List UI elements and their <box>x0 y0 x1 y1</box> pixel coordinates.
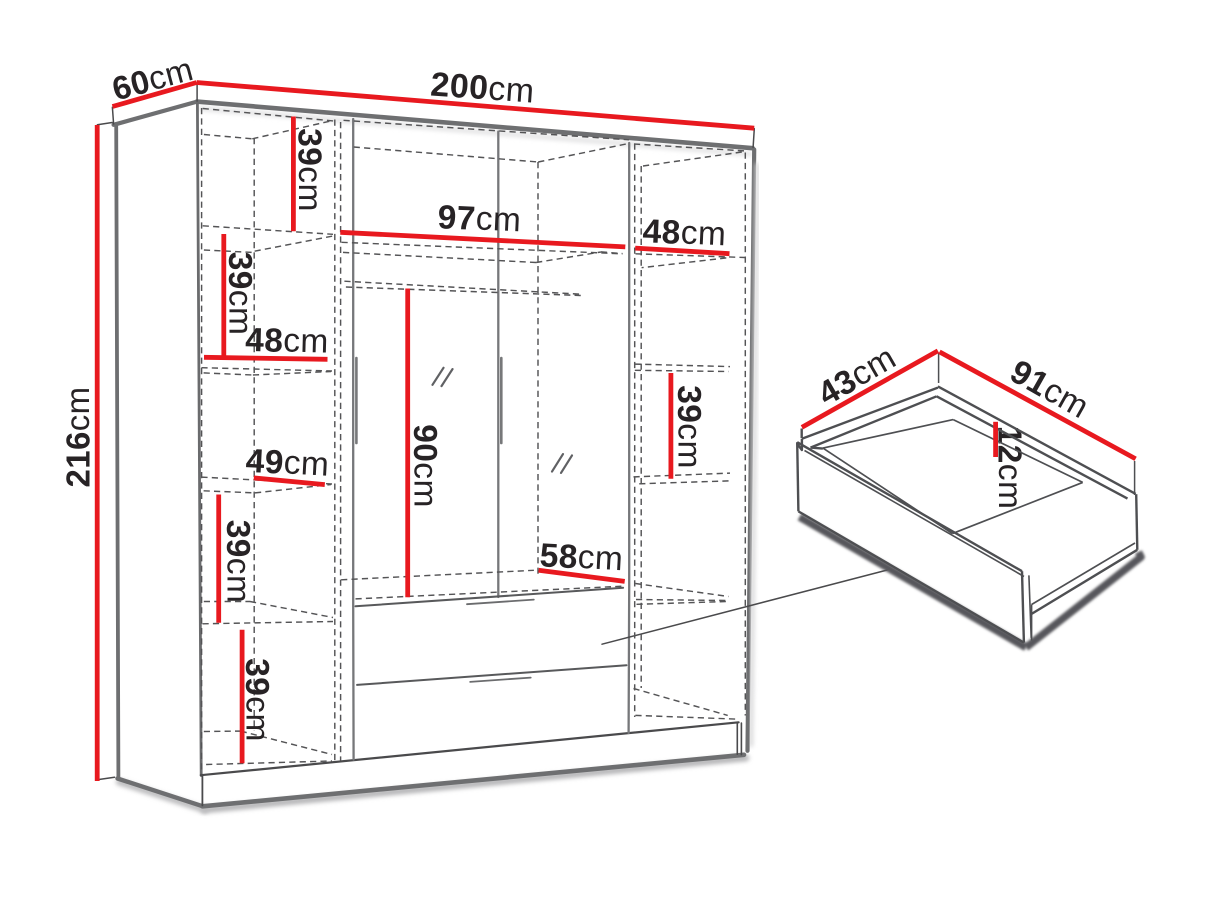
svg-text:48cm: 48cm <box>642 213 727 254</box>
svg-text:200cm: 200cm <box>429 65 535 110</box>
svg-text:91cm: 91cm <box>1004 353 1095 426</box>
svg-text:39cm: 39cm <box>291 128 328 212</box>
svg-text:49cm: 49cm <box>245 442 330 483</box>
svg-text:60cm: 60cm <box>108 50 197 107</box>
svg-text:48cm: 48cm <box>245 321 329 360</box>
svg-text:39cm: 39cm <box>239 658 276 742</box>
svg-text:39cm: 39cm <box>671 385 708 469</box>
svg-text:90cm: 90cm <box>407 424 444 508</box>
svg-text:216cm: 216cm <box>59 386 96 487</box>
svg-text:39cm: 39cm <box>220 520 257 604</box>
svg-text:58cm: 58cm <box>539 537 624 578</box>
svg-text:97cm: 97cm <box>437 199 522 240</box>
